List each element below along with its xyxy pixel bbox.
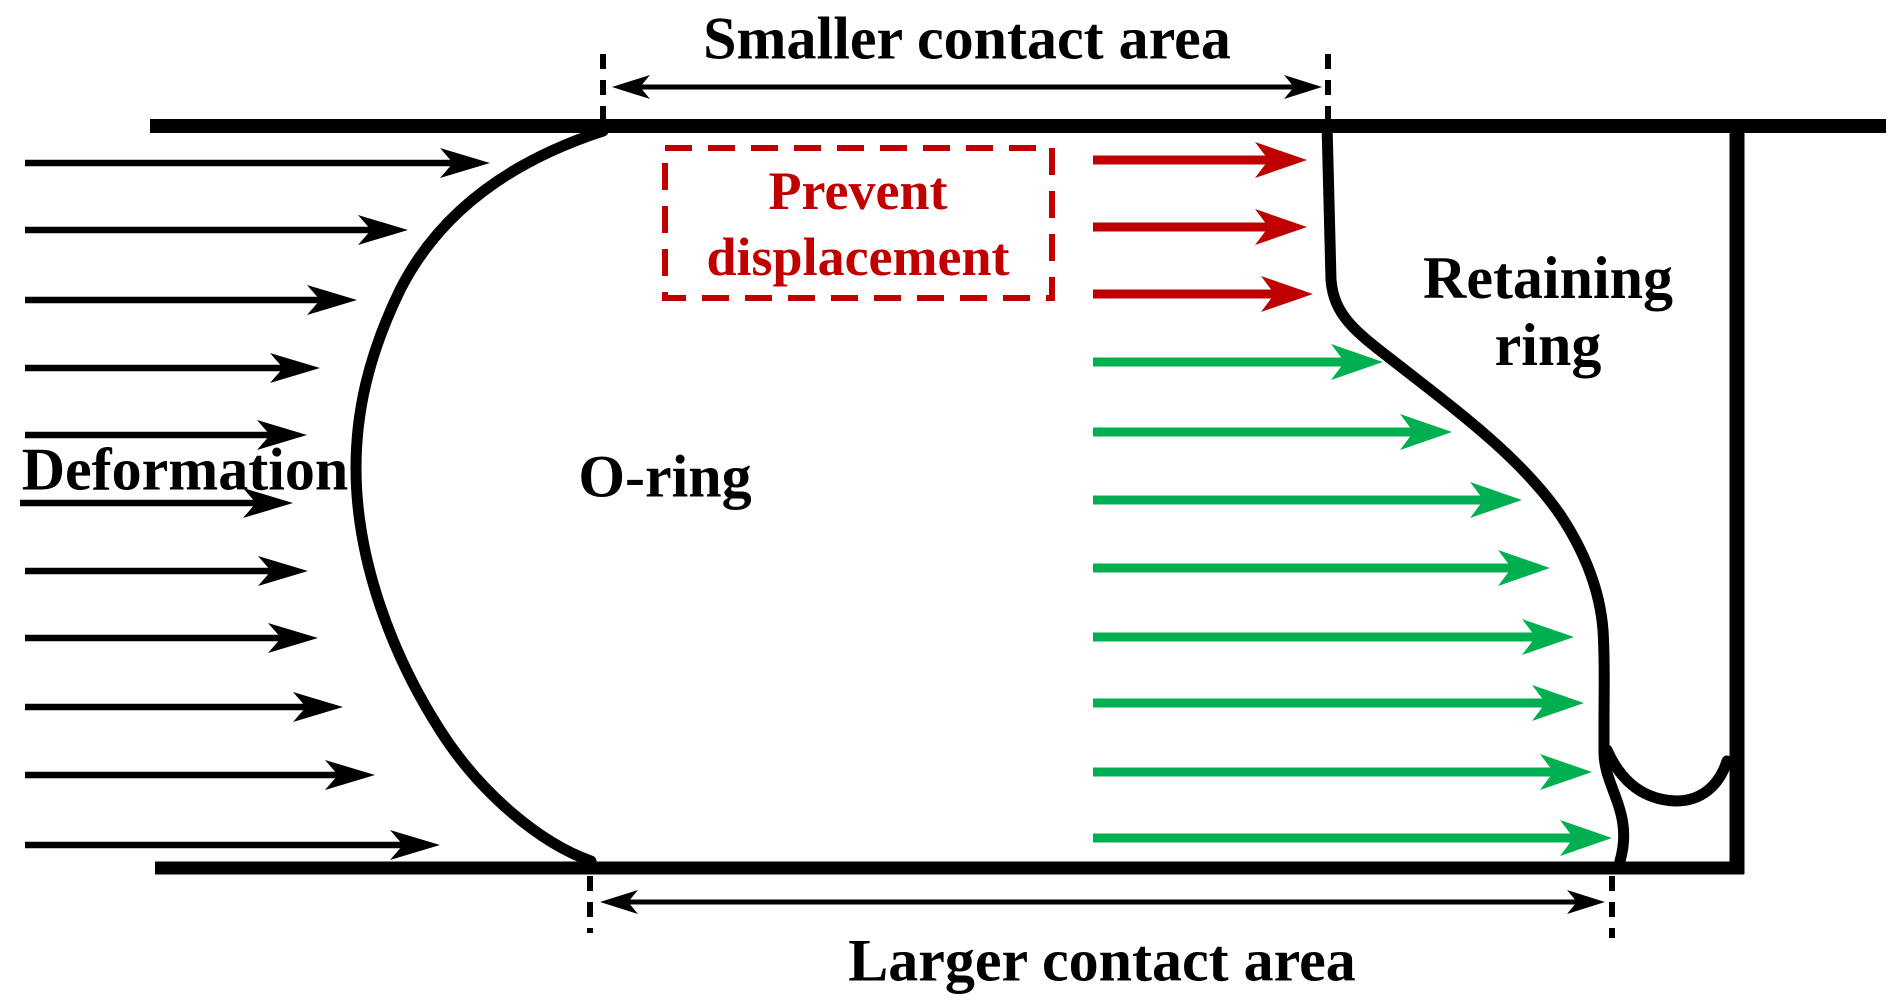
retaining-ring-bottom-edge — [1607, 750, 1727, 801]
prevent-displacement-label: Prevent displacement — [707, 158, 1010, 290]
prevent-displacement-line2: displacement — [707, 224, 1010, 290]
deformation-label: Deformation — [22, 436, 349, 505]
retaining-ring-profile — [1327, 124, 1624, 861]
oring-diagram: Smaller contact area Larger contact area… — [0, 0, 1892, 1002]
o-ring-label: O-ring — [578, 443, 751, 512]
larger-contact-area-label: Larger contact area — [848, 927, 1356, 996]
o-ring-profile — [356, 131, 603, 861]
retaining-ring-label-line2: ring — [1423, 312, 1673, 379]
smaller-contact-area-label: Smaller contact area — [703, 5, 1231, 74]
retaining-ring-label: Retaining ring — [1423, 245, 1673, 379]
retaining-ring-label-line1: Retaining — [1423, 245, 1673, 312]
prevent-displacement-line1: Prevent — [707, 158, 1010, 224]
